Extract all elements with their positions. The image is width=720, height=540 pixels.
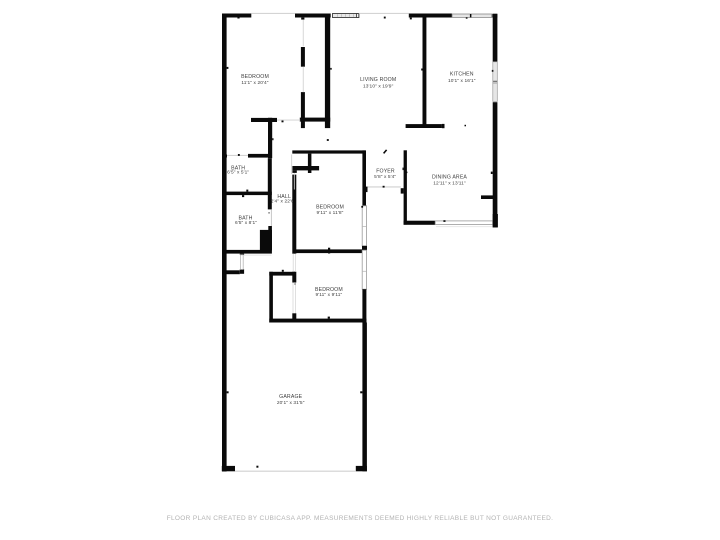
svg-text:LIVING ROOM: LIVING ROOM	[360, 77, 396, 83]
svg-text:6'5" x 8'1": 6'5" x 8'1"	[235, 220, 257, 226]
svg-text:13'10" x 19'9": 13'10" x 19'9"	[363, 83, 394, 89]
svg-text:KITCHEN: KITCHEN	[450, 71, 474, 77]
svg-text:FLOOR PLAN CREATED BY CUBICASA: FLOOR PLAN CREATED BY CUBICASA APP. MEAS…	[167, 515, 554, 522]
svg-text:9'11" x 11'8": 9'11" x 11'8"	[317, 210, 344, 216]
svg-text:DINING AREA: DINING AREA	[432, 174, 467, 180]
svg-text:11'1" x 20'4": 11'1" x 20'4"	[241, 80, 268, 86]
svg-text:6'5" x 5'1": 6'5" x 5'1"	[227, 169, 249, 175]
svg-text:FOYER: FOYER	[376, 169, 395, 175]
svg-text:2'4" x 22'6": 2'4" x 22'6"	[271, 199, 296, 205]
svg-text:20'1" x 31'5": 20'1" x 31'5"	[277, 400, 305, 406]
svg-text:12'11" x 13'11": 12'11" x 13'11"	[433, 180, 466, 186]
svg-text:BEDROOM: BEDROOM	[316, 204, 344, 210]
svg-text:9'11" x 9'11": 9'11" x 9'11"	[315, 292, 342, 298]
svg-text:5'8" x 5'4": 5'8" x 5'4"	[374, 174, 396, 180]
svg-text:BEDROOM: BEDROOM	[315, 287, 343, 293]
svg-text:BEDROOM: BEDROOM	[241, 74, 269, 80]
svg-text:GARAGE: GARAGE	[279, 394, 302, 400]
svg-text:10'1" x 16'1": 10'1" x 16'1"	[448, 78, 476, 84]
